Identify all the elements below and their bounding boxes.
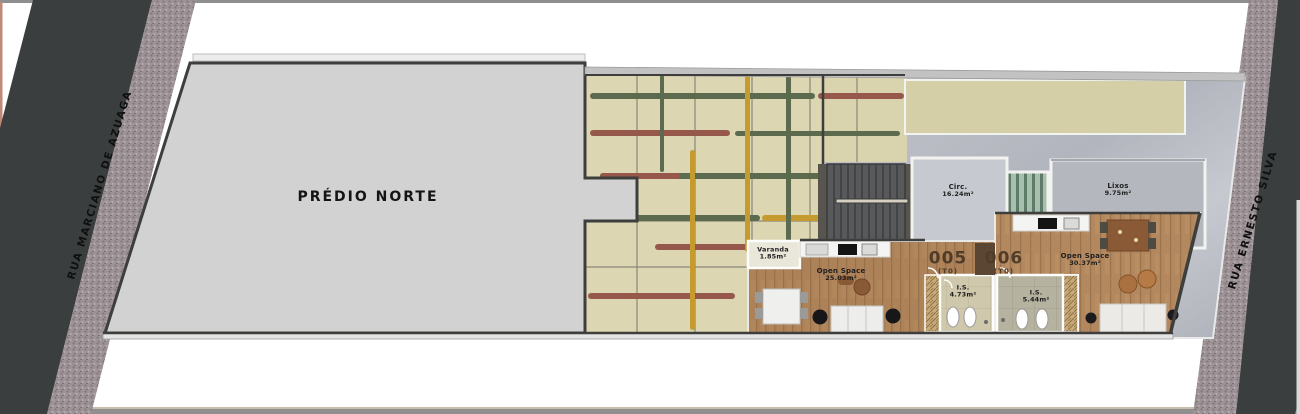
room-circ (912, 158, 1007, 247)
dish-rack-icon (806, 244, 828, 255)
kitchen-005 (800, 241, 890, 257)
dining-table-icon (1107, 220, 1149, 251)
toilet-icon (1016, 309, 1028, 329)
room-varanda (748, 241, 800, 268)
drain-icon (1001, 318, 1005, 322)
predio-norte-top-band (193, 54, 585, 61)
pouf-icon (886, 309, 901, 324)
planter-strip-top (905, 80, 1185, 134)
bathroom-006 (997, 275, 1063, 332)
drain-icon (984, 320, 988, 324)
bench-icon (838, 276, 854, 285)
wardrobe-006 (1063, 275, 1078, 332)
sofa-icon (1100, 304, 1166, 332)
toilet-icon (947, 307, 959, 327)
sink-icon (1064, 218, 1079, 229)
bottom-border (0, 409, 1300, 414)
kitchen-006 (1013, 215, 1089, 231)
party-wall (975, 243, 995, 275)
dining-table-icon (763, 289, 800, 324)
sofa-icon (831, 306, 883, 332)
wardrobe-005 (925, 275, 940, 332)
side-table-icon (1086, 313, 1097, 324)
cooktop-icon (1038, 218, 1057, 229)
stairwell (818, 164, 914, 240)
bidet-icon (964, 307, 976, 327)
bidet-icon (1036, 309, 1048, 329)
cooktop-icon (838, 244, 857, 255)
predio-norte-building (105, 63, 637, 333)
elevator (1007, 172, 1048, 214)
pouf-icon (813, 310, 828, 325)
floor-plan-page: RUA MARCIANO DE AZUAGA RUA ERNESTO SILVA… (0, 0, 1300, 414)
floor-plan-drawing (0, 0, 1300, 414)
pouf-icon (1138, 270, 1156, 288)
courtyard-upper (823, 74, 907, 162)
right-edge-strip (1297, 200, 1300, 414)
stair-handrail (836, 199, 908, 203)
coffee-table-icon (854, 279, 870, 295)
sink-icon (862, 244, 877, 255)
bathroom-005 (940, 275, 993, 332)
bottom-tan-line (0, 407, 1300, 409)
pouf-icon (1119, 275, 1137, 293)
